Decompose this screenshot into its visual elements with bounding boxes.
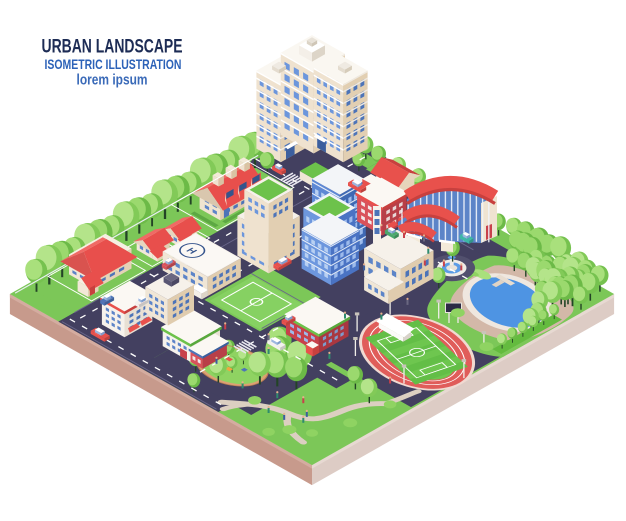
svg-text:lorem ipsum: lorem ipsum bbox=[77, 72, 148, 89]
svg-text:ISOMETRIC ILLUSTRATION: ISOMETRIC ILLUSTRATION bbox=[45, 56, 182, 72]
svg-text:URBAN LANDSCAPE: URBAN LANDSCAPE bbox=[42, 36, 183, 58]
